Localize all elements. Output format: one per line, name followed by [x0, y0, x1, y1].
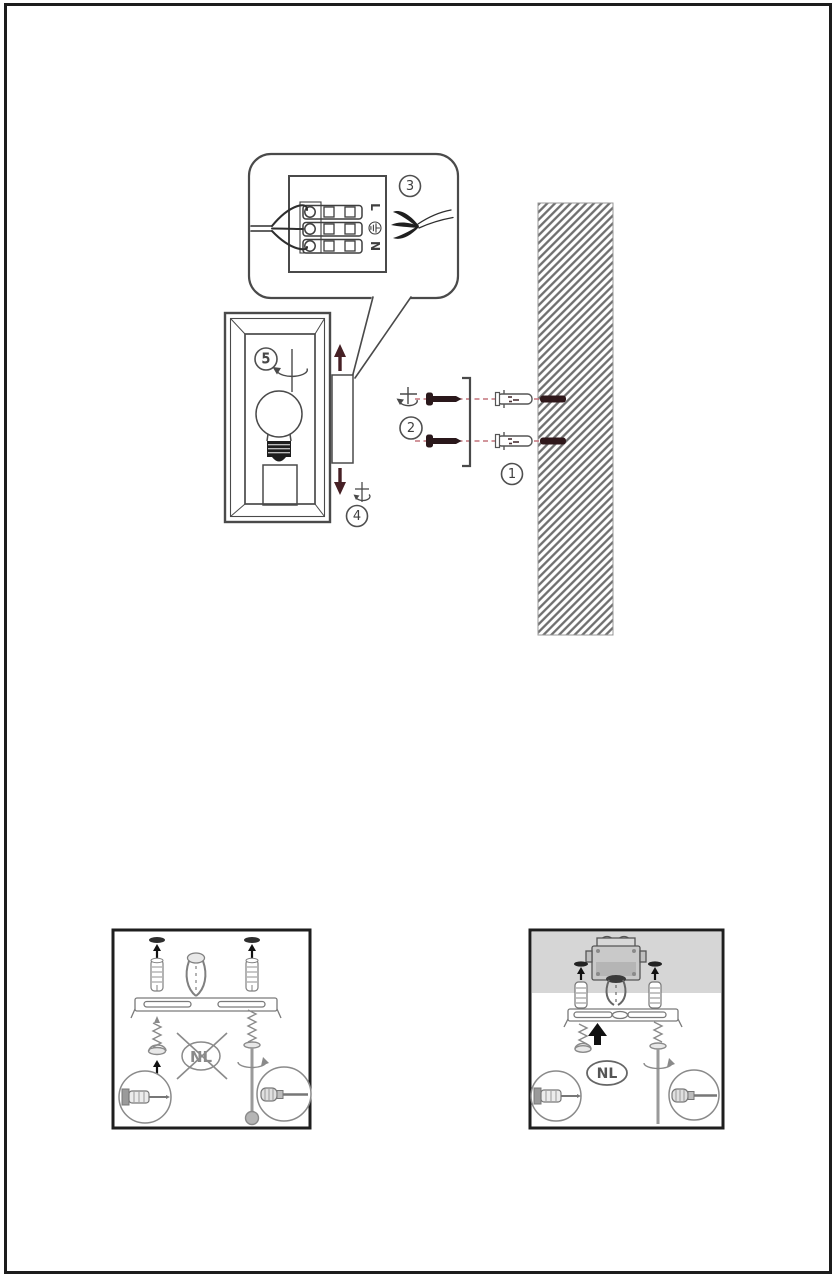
- installation-diagram: L N 3: [0, 0, 836, 1280]
- svg-text:2: 2: [407, 421, 415, 436]
- up-arrow-icon: [334, 344, 346, 371]
- down-arrow-icon: [334, 468, 346, 495]
- wall-section: [538, 203, 613, 635]
- screw-rotation-icon: [354, 482, 370, 502]
- bracket-edge-view: [462, 378, 470, 466]
- mounting-plate-group: 4: [332, 344, 370, 527]
- wall-plug: [496, 390, 533, 408]
- wall-hole: [540, 396, 566, 403]
- screws-group: 2: [397, 378, 471, 466]
- detail-box-left: NL: [113, 930, 311, 1128]
- mounting-screw: [426, 435, 462, 448]
- svg-text:5: 5: [262, 352, 270, 367]
- screw-rotation-icon: [273, 349, 308, 392]
- terminal-label-live: L: [368, 203, 382, 211]
- svg-text:1: 1: [508, 467, 516, 482]
- svg-text:3: 3: [406, 179, 414, 194]
- wall-plug: [496, 432, 533, 450]
- wall-hole: [540, 438, 566, 445]
- country-code-right: NL: [597, 1066, 618, 1082]
- light-bulb: [256, 391, 302, 462]
- lamp-fixture: 5: [225, 313, 330, 522]
- wall-hatched: [538, 203, 613, 635]
- country-code-oval: NL: [587, 1061, 627, 1085]
- screw-rotation-icon: [397, 387, 418, 406]
- mounting-screw: [426, 393, 462, 406]
- lamp-backplate: [263, 465, 297, 505]
- step-badge-bulb: 5: [255, 348, 277, 370]
- svg-text:4: 4: [353, 509, 361, 524]
- terminal-label-neutral: N: [368, 241, 382, 251]
- mounting-plate: [332, 375, 353, 463]
- detail-box-right: NL: [530, 930, 723, 1128]
- step-badge-wall-plugs: 1: [502, 464, 523, 485]
- screwdriver-detail-circle: [669, 1070, 719, 1120]
- plug-detail-circle: [119, 1071, 171, 1123]
- plug-detail-circle: [531, 1071, 581, 1121]
- step-badge-wiring: 3: [400, 176, 421, 197]
- step-badge-fixture: 4: [347, 506, 368, 527]
- wiring-callout: L N 3: [249, 154, 458, 379]
- screwdriver-detail-circle: [257, 1067, 311, 1121]
- manual-page: L N 3: [0, 0, 836, 1280]
- step-badge-screws: 2: [400, 417, 422, 439]
- bulb-tip: [272, 457, 286, 462]
